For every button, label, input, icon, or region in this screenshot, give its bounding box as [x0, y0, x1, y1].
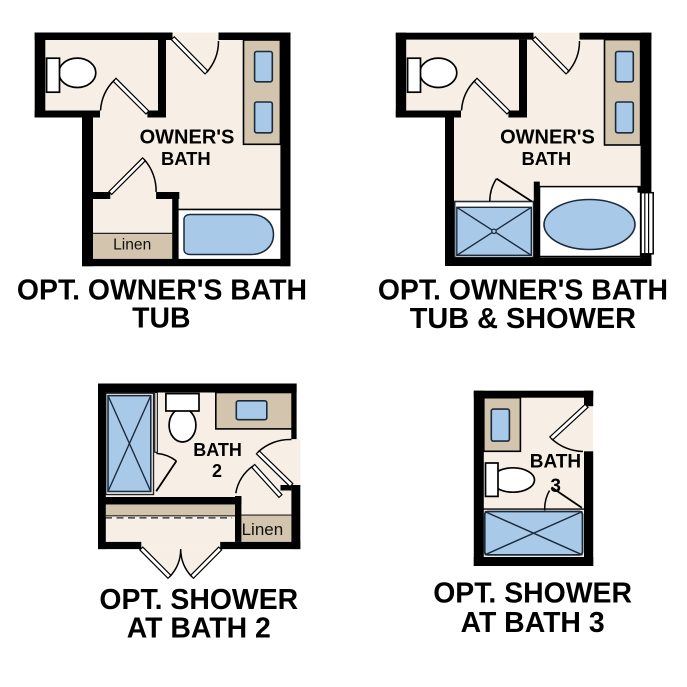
svg-text:OPT. OWNER'S BATH: OPT. OWNER'S BATH: [378, 274, 668, 306]
svg-text:2: 2: [212, 461, 222, 481]
svg-text:TUB: TUB: [132, 303, 190, 335]
svg-text:BATH: BATH: [530, 451, 581, 472]
svg-text:OPT. SHOWER: OPT. SHOWER: [433, 578, 632, 610]
svg-text:AT BATH 2: AT BATH 2: [127, 613, 271, 645]
svg-text:TUB & SHOWER: TUB & SHOWER: [410, 303, 636, 335]
svg-text:3: 3: [550, 476, 561, 497]
svg-text:AT BATH 3: AT BATH 3: [461, 607, 605, 639]
svg-text:BATH: BATH: [193, 440, 242, 460]
svg-text:BATH: BATH: [521, 148, 571, 169]
svg-text:OPT. SHOWER: OPT. SHOWER: [99, 584, 298, 616]
svg-text:Linen: Linen: [242, 520, 284, 539]
svg-text:OWNER'S: OWNER'S: [140, 126, 235, 148]
svg-text:Linen: Linen: [113, 236, 151, 253]
svg-text:OWNER'S: OWNER'S: [500, 126, 595, 148]
svg-text:BATH: BATH: [161, 148, 211, 169]
